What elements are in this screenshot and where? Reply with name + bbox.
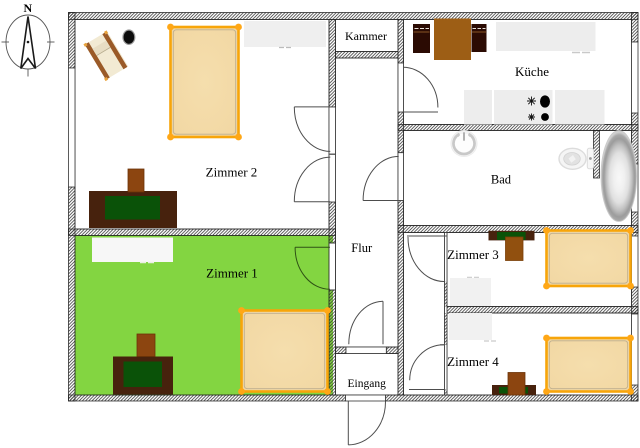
svg-text:Zimmer 4: Zimmer 4: [447, 354, 499, 369]
svg-text:N: N: [23, 1, 32, 15]
svg-text:Zimmer 3: Zimmer 3: [447, 247, 499, 262]
svg-text:Flur: Flur: [351, 241, 373, 255]
svg-text:Zimmer 1: Zimmer 1: [206, 266, 258, 281]
svg-text:Eingang: Eingang: [348, 378, 387, 390]
svg-text:Zimmer 2: Zimmer 2: [206, 165, 258, 180]
svg-text:Kammer: Kammer: [345, 29, 387, 43]
svg-text:Bad: Bad: [491, 173, 512, 187]
svg-text:Küche: Küche: [515, 64, 549, 79]
